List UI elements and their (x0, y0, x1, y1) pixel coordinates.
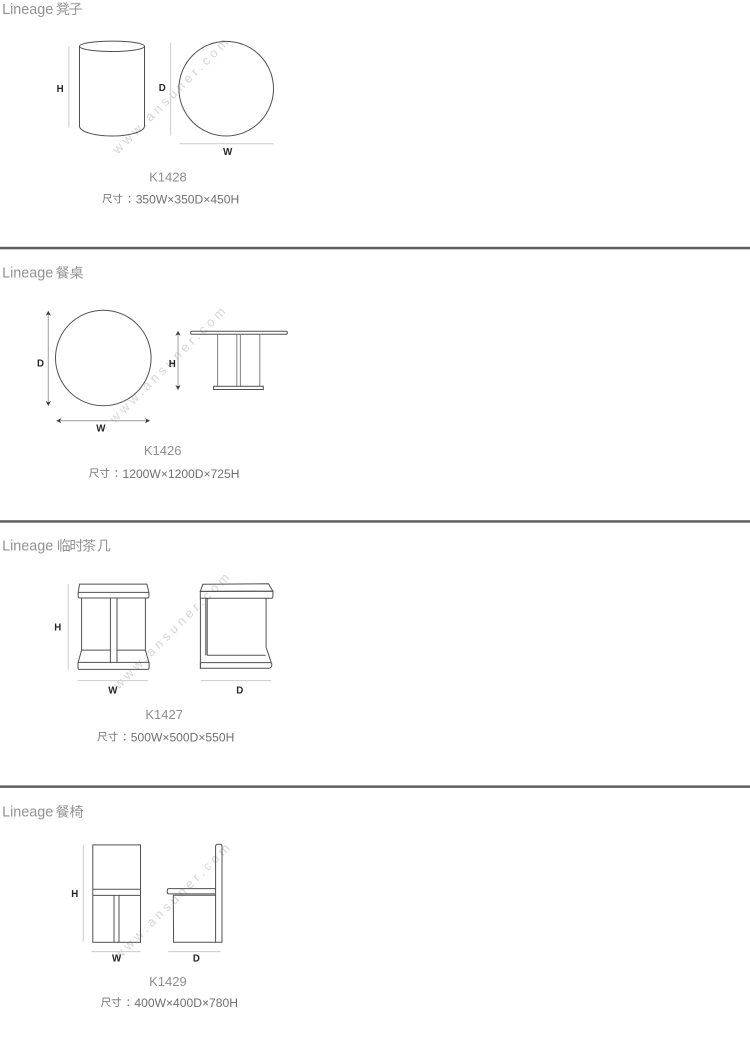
svg-text:Lineage: Lineage (2, 2, 53, 18)
svg-text:500W×500D×550H: 500W×500D×550H (131, 730, 235, 744)
svg-text:H: H (54, 623, 61, 634)
svg-text:W: W (223, 147, 233, 158)
svg-text:www.ansuner.com: www.ansuner.com (110, 838, 235, 963)
svg-text:K1427: K1427 (145, 707, 183, 722)
svg-text:K1428: K1428 (149, 169, 187, 184)
svg-text:1200W×1200D×725H: 1200W×1200D×725H (123, 467, 240, 481)
svg-text:W: W (96, 424, 106, 435)
svg-text:K1429: K1429 (149, 974, 187, 989)
svg-text:D: D (193, 954, 200, 965)
svg-text:H: H (57, 84, 64, 95)
svg-text:www.ansuner.com: www.ansuner.com (110, 567, 235, 692)
svg-text:H: H (71, 889, 78, 900)
svg-text:W: W (112, 954, 122, 965)
svg-text:K1426: K1426 (144, 443, 182, 458)
svg-text:H: H (169, 359, 176, 370)
svg-text:Lineage: Lineage (2, 805, 53, 821)
svg-text:D: D (37, 359, 44, 370)
svg-text:400W×400D×780H: 400W×400D×780H (134, 996, 238, 1010)
svg-text:350W×350D×450H: 350W×350D×450H (136, 192, 240, 206)
svg-text:Lineage: Lineage (2, 266, 53, 282)
svg-text:D: D (159, 83, 166, 94)
svg-text:D: D (236, 685, 243, 696)
svg-text:W: W (108, 685, 118, 696)
svg-text:Lineage: Lineage (2, 539, 53, 555)
